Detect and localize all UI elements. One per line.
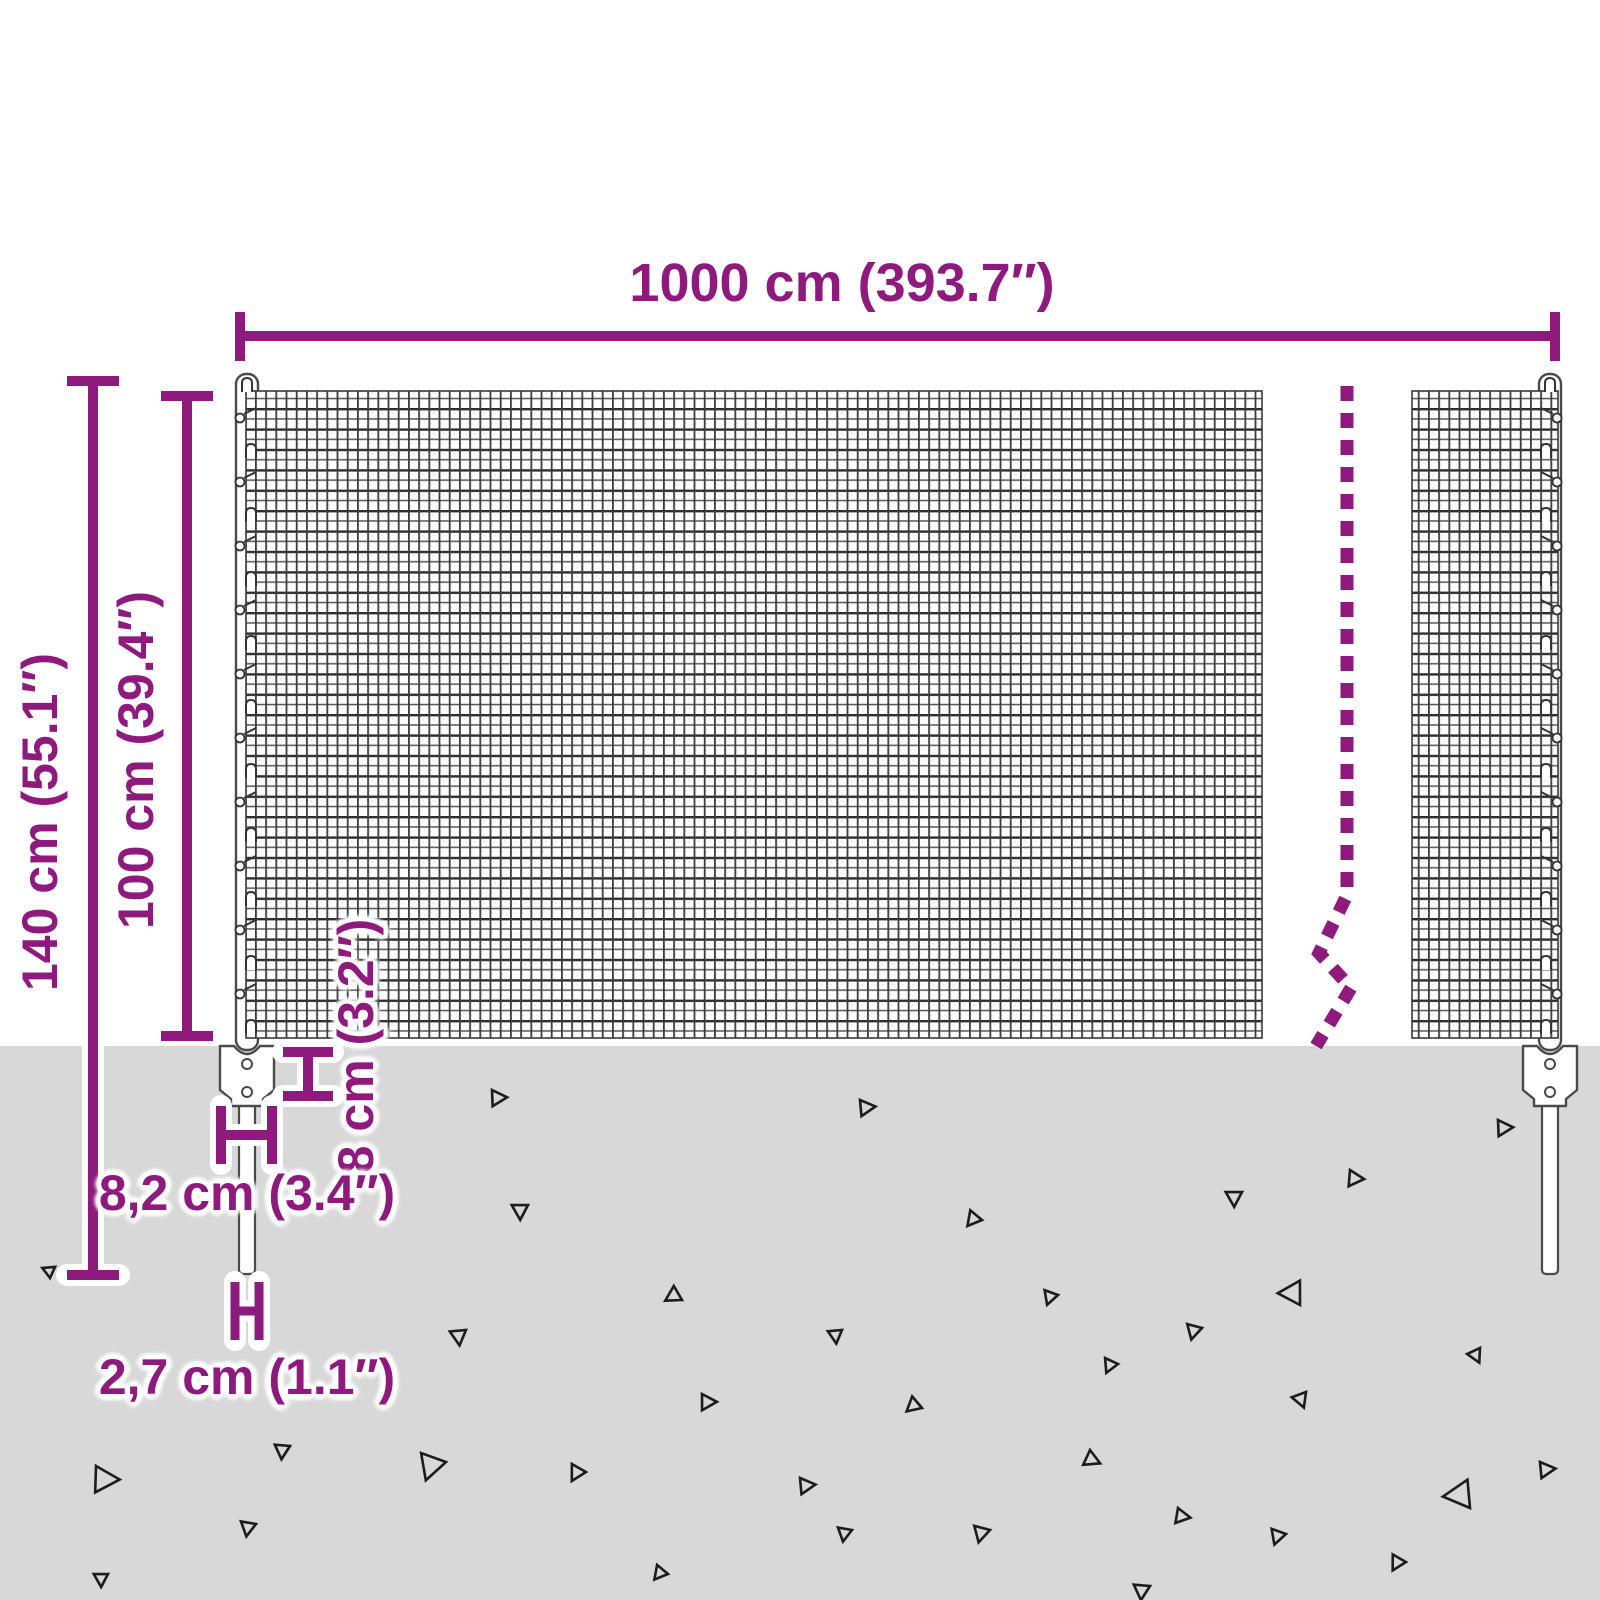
- clip-eyelet-icon: [1553, 478, 1562, 487]
- mesh-hook-icon: [246, 764, 256, 778]
- clip-eyelet-icon: [236, 542, 245, 551]
- mesh-hook-icon: [1541, 764, 1551, 778]
- dimension-label-fence-height: 100 cm (39.4″): [107, 591, 165, 929]
- mesh-hook-icon: [246, 892, 256, 906]
- mesh-hook-icon: [1541, 508, 1551, 522]
- mesh-hook-icon: [1541, 828, 1551, 842]
- fence-dimension-diagram: 1000 cm (393.7″) 140 cm (55.1″) 100 cm (…: [0, 0, 1600, 1600]
- dimension-label-total-height: 140 cm (55.1″): [11, 653, 69, 991]
- dimension-label-plate-width: 8,2 cm (3.4″): [99, 1164, 395, 1222]
- clip-eyelet-icon: [236, 862, 245, 871]
- mesh-hook-icon: [1541, 444, 1551, 458]
- mesh-hook-icon: [246, 572, 256, 586]
- clip-eyelet-icon: [1553, 990, 1562, 999]
- dimension-label-anchor-depth: 8 cm (3.2″): [327, 919, 385, 1174]
- clip-eyelet-icon: [1553, 862, 1562, 871]
- clip-eyelet-icon: [1553, 414, 1562, 423]
- clip-eyelet-icon: [236, 734, 245, 743]
- clip-eyelet-icon: [236, 670, 245, 679]
- clip-eyelet-icon: [236, 478, 245, 487]
- mesh-hook-icon: [1541, 572, 1551, 586]
- mesh-hook-icon: [246, 1020, 256, 1034]
- fence-mesh-panel-main: [246, 391, 1262, 1038]
- mesh-hook-icon: [246, 956, 256, 970]
- mesh-hook-icon: [242, 378, 252, 392]
- clip-eyelet-icon: [1553, 542, 1562, 551]
- dimension-label-spike-width: 2,7 cm (1.1″): [99, 1348, 395, 1406]
- mesh-hook-icon: [1541, 1020, 1551, 1034]
- dimension-label-total-width: 1000 cm (393.7″): [629, 252, 1054, 314]
- mesh-hook-icon: [246, 700, 256, 714]
- mesh-hook-icon: [1541, 700, 1551, 714]
- mesh-hook-icon: [1541, 636, 1551, 650]
- clip-eyelet-icon: [236, 926, 245, 935]
- clip-eyelet-icon: [1553, 606, 1562, 615]
- mesh-hook-icon: [1541, 956, 1551, 970]
- mesh-hook-icon: [246, 508, 256, 522]
- mesh-hook-icon: [246, 828, 256, 842]
- clip-eyelet-icon: [1553, 926, 1562, 935]
- mesh-hook-icon: [1541, 892, 1551, 906]
- mesh-hook-icon: [246, 636, 256, 650]
- clip-eyelet-icon: [1553, 734, 1562, 743]
- clip-eyelet-icon: [1553, 670, 1562, 679]
- mesh-hook-icon: [1545, 378, 1555, 392]
- clip-eyelet-icon: [1553, 798, 1562, 807]
- dashed-continuation-line: [1316, 386, 1351, 1046]
- clip-eyelet-icon: [236, 990, 245, 999]
- clip-eyelet-icon: [236, 798, 245, 807]
- clip-eyelet-icon: [236, 606, 245, 615]
- fence-mesh-panel-right: [1412, 391, 1558, 1038]
- clip-eyelet-icon: [236, 414, 245, 423]
- mesh-hook-icon: [246, 444, 256, 458]
